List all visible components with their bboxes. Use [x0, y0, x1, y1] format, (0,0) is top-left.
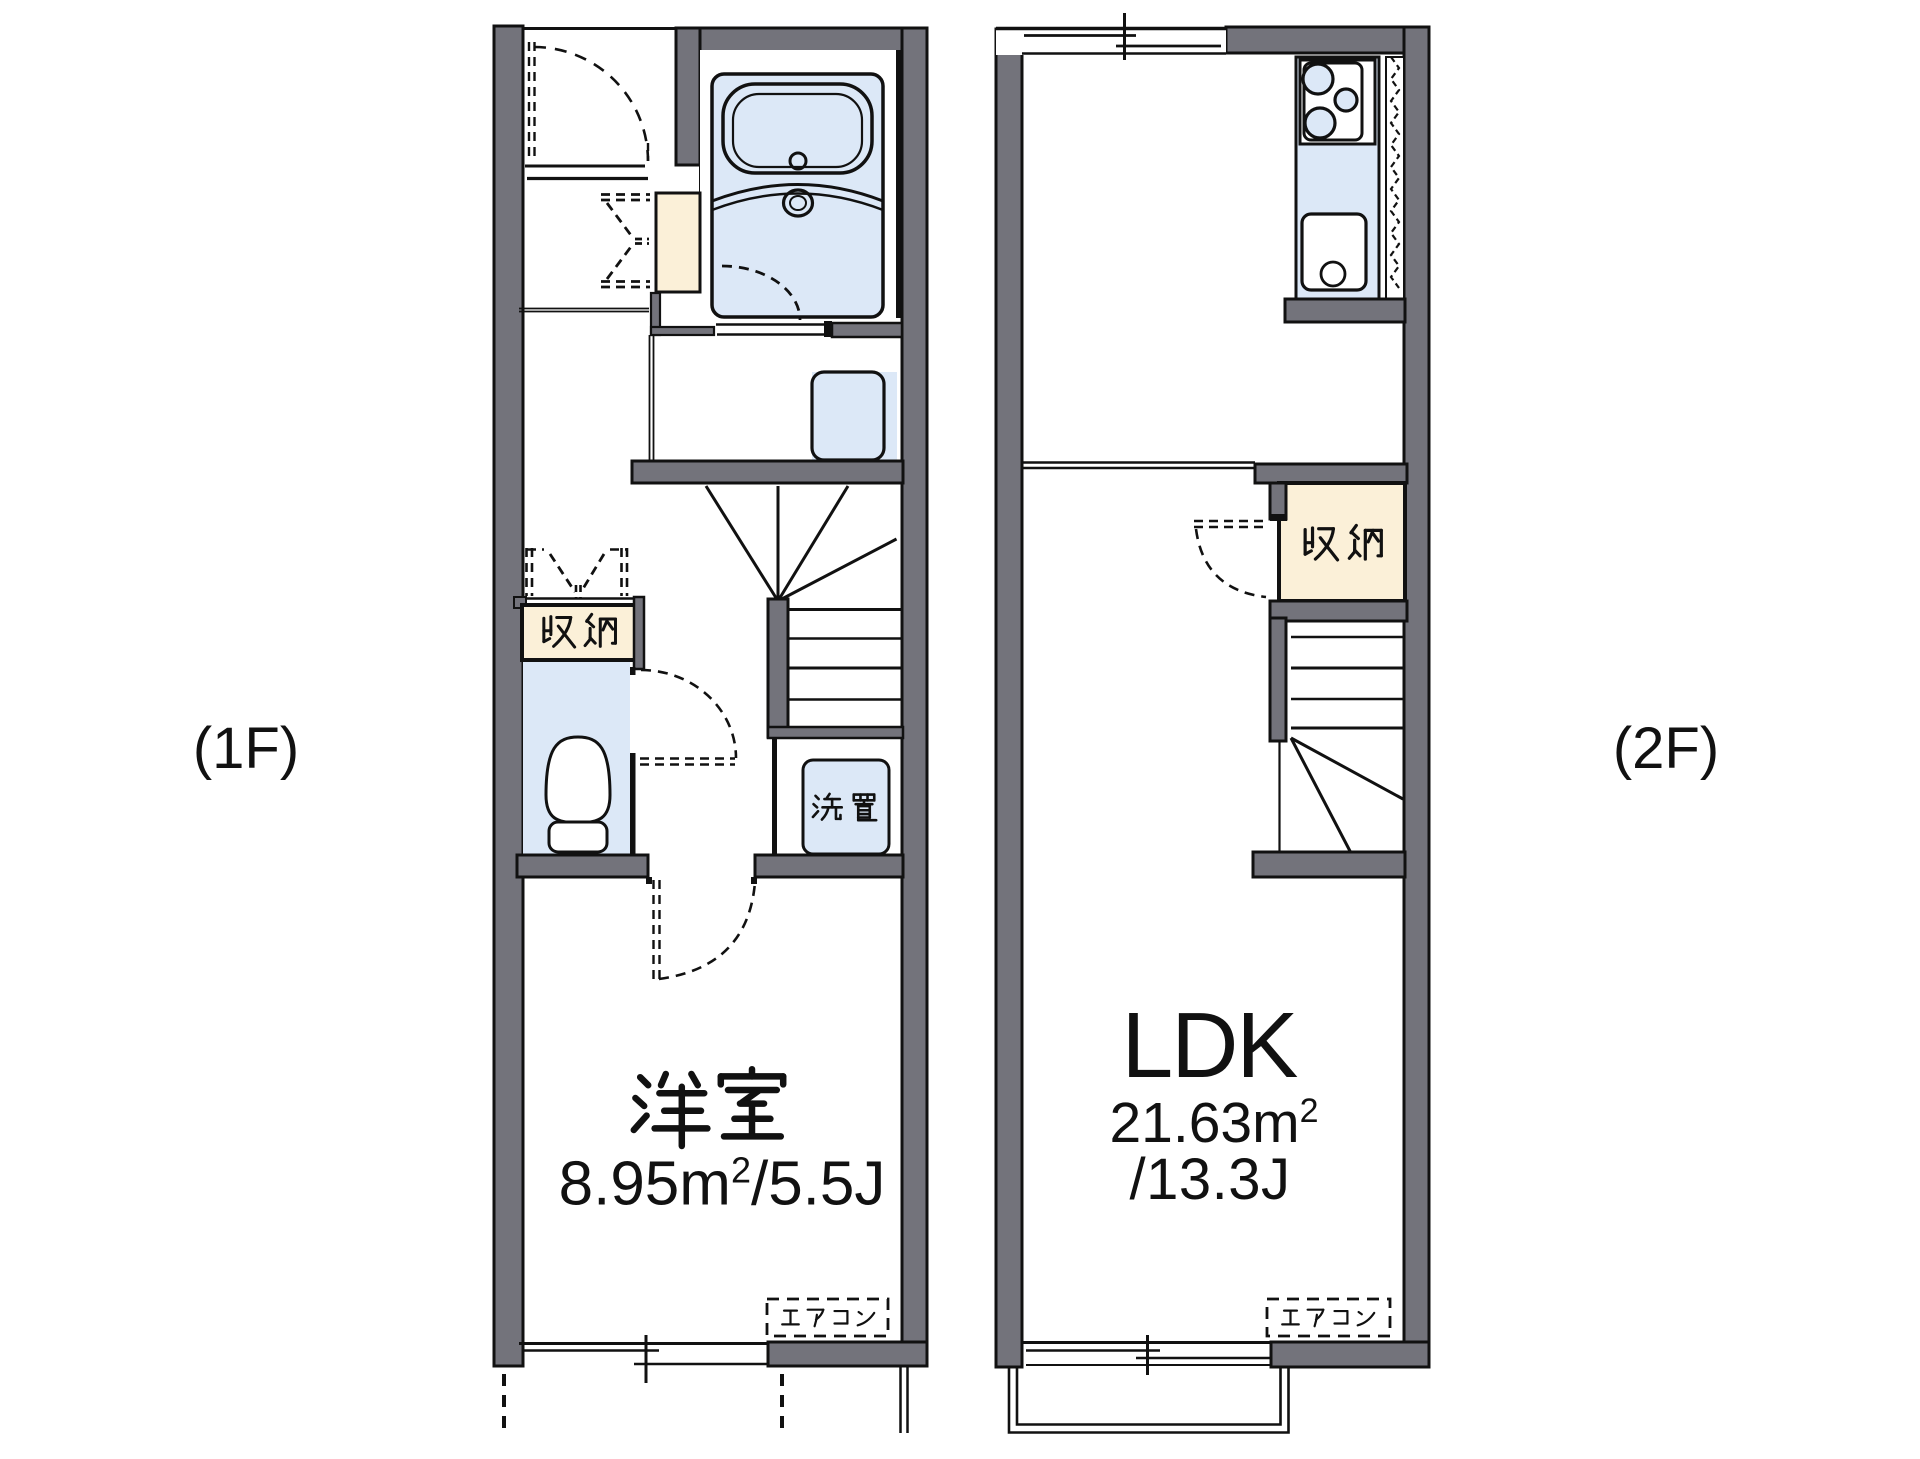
svg-text:(2F): (2F)	[1613, 716, 1719, 781]
svg-text:21.63m2: 21.63m2	[1109, 1091, 1318, 1155]
svg-text:8.95m2/5.5J: 8.95m2/5.5J	[559, 1150, 886, 1219]
svg-text:LDK: LDK	[1122, 993, 1298, 1097]
svg-text:/13.3J: /13.3J	[1130, 1147, 1291, 1212]
svg-text:(1F): (1F)	[193, 716, 299, 781]
